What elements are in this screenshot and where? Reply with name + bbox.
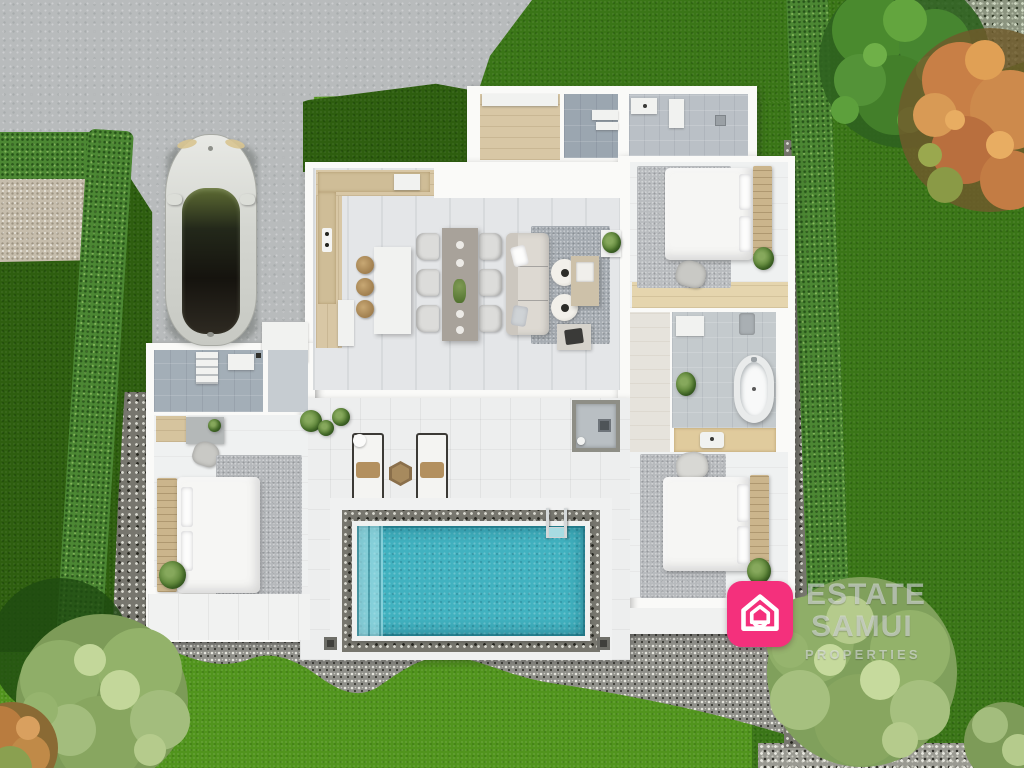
watermark-line3: PROPERTIES [805,648,921,661]
house-icon [738,591,782,637]
villa-floor-plan-render: ESTATE SAMUI PROPERTIES [0,0,1024,768]
watermark-line1: ESTATE [806,580,926,610]
bush-bottom-right [964,702,1024,768]
watermark-logo [727,581,793,647]
watermark-line2: SAMUI [811,612,913,642]
